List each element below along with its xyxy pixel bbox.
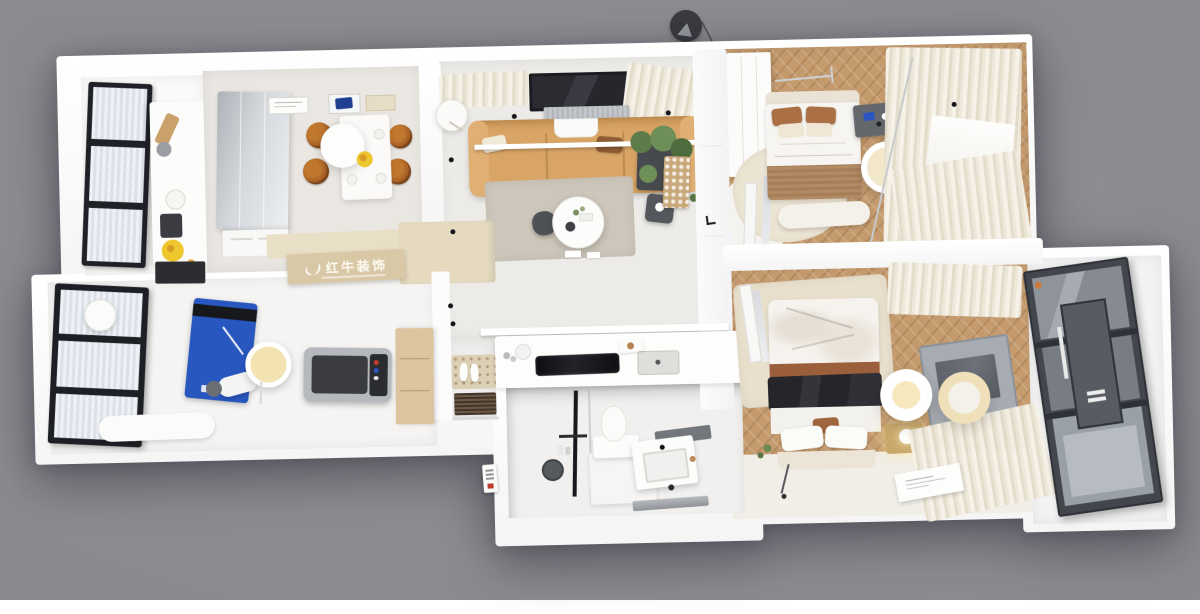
sink-basin xyxy=(642,448,689,483)
pillow-white xyxy=(825,425,868,450)
red-seal-icon xyxy=(487,483,493,488)
window-wall-kitchen xyxy=(82,82,153,268)
cable-end xyxy=(781,494,786,499)
spotlight-icon xyxy=(449,157,454,162)
coffee-machine xyxy=(160,213,183,237)
spotlight-icon xyxy=(512,114,517,119)
bed-master-duvet xyxy=(768,298,880,370)
induction-cooktop xyxy=(535,353,620,376)
spotlight-icon xyxy=(666,110,671,115)
scene: 红牛装饰 xyxy=(0,0,1200,600)
toilet-seat xyxy=(600,405,627,442)
rug-card xyxy=(565,250,581,257)
kitchen-counter xyxy=(149,101,207,264)
spotlight-icon xyxy=(450,321,455,326)
wall-art-frame-3 xyxy=(365,95,395,112)
wall-art-frame-1 xyxy=(268,97,308,115)
counter-sink xyxy=(637,350,680,375)
door-handle-icon xyxy=(706,215,716,225)
treadmill xyxy=(303,347,392,402)
shampoo-bottle xyxy=(565,447,570,455)
rug-card xyxy=(587,252,600,258)
soap xyxy=(690,456,696,462)
slipper xyxy=(470,364,479,382)
watermark-text: 红牛装饰 xyxy=(325,258,388,275)
base-cabinet-dark xyxy=(155,261,205,283)
vanity-cabinet xyxy=(631,435,699,490)
shower-arm xyxy=(559,434,587,438)
shampoo-bottle xyxy=(557,445,563,455)
entry-brand-plaque xyxy=(482,464,498,493)
pillow-cream xyxy=(778,123,805,139)
bed-small-knit-throw xyxy=(767,164,862,200)
tall-wood-cabinet xyxy=(395,328,434,424)
spotlight-icon xyxy=(450,229,455,234)
kitchen-bar-counter xyxy=(495,331,744,389)
bed-master-headboard xyxy=(777,450,875,470)
spotlight-icon xyxy=(448,303,453,308)
bull-logo-icon xyxy=(304,262,320,276)
plant-sprig xyxy=(757,452,763,458)
storage-bench xyxy=(98,412,215,443)
apartment-floorplan: 红牛装饰 xyxy=(0,0,1200,614)
pillow-cream xyxy=(806,123,832,137)
entry-doormat xyxy=(454,392,496,415)
brand-watermark: 红牛装饰 xyxy=(286,248,406,285)
wall-art-frame-blue xyxy=(328,93,360,114)
island-bar-face: 红牛装饰 xyxy=(287,249,406,285)
wall-gym-hall xyxy=(431,271,452,419)
lattice-screen xyxy=(663,156,691,209)
sofa-tray xyxy=(554,118,598,138)
curtain-master-top xyxy=(887,262,1022,318)
